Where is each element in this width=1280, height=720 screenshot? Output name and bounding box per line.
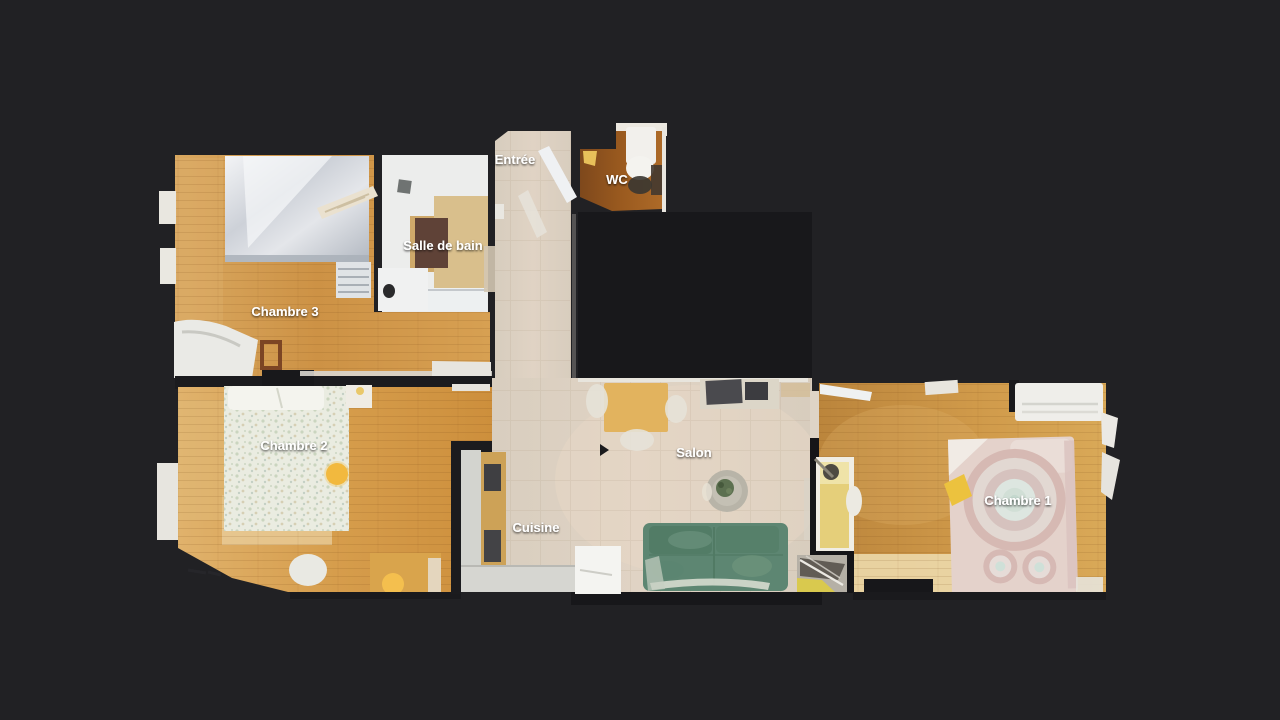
- svg-text:Salon: Salon: [676, 445, 711, 460]
- svg-text:Salle de bain: Salle de bain: [403, 238, 483, 253]
- svg-text:Chambre 1: Chambre 1: [984, 493, 1051, 508]
- svg-text:Cuisine: Cuisine: [513, 520, 560, 535]
- svg-text:Chambre 2: Chambre 2: [260, 438, 327, 453]
- svg-text:Entrée: Entrée: [495, 152, 535, 167]
- svg-text:Chambre 3: Chambre 3: [251, 304, 318, 319]
- svg-text:WC: WC: [606, 172, 628, 187]
